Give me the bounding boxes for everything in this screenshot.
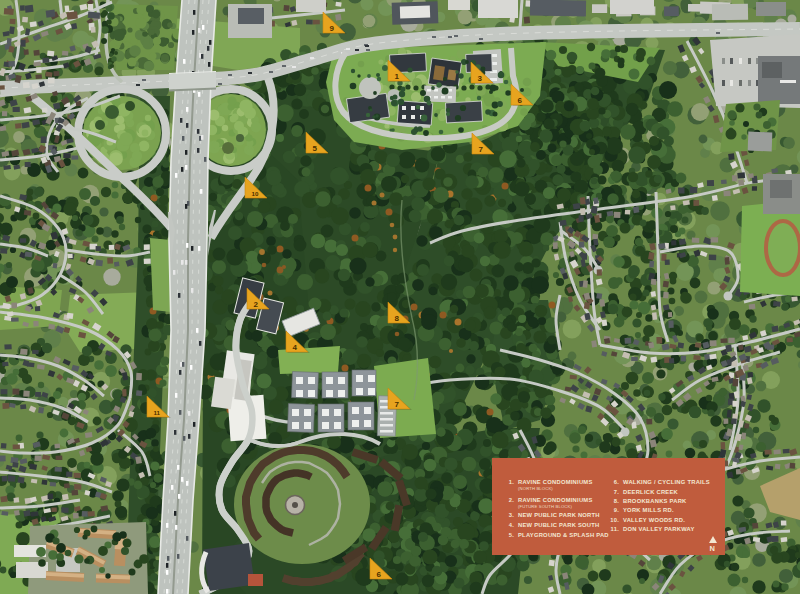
svg-text:PLAYGROUND & SPLASH PAD: PLAYGROUND & SPLASH PAD [518,532,609,538]
svg-text:3: 3 [478,74,483,83]
svg-text:7: 7 [395,400,400,409]
svg-text:6: 6 [518,96,523,105]
svg-text:DON VALLEY PARKWAY: DON VALLEY PARKWAY [623,526,695,532]
svg-text:3.: 3. [509,512,514,518]
svg-text:2: 2 [254,300,259,309]
svg-text:NEW PUBLIC PARK NORTH: NEW PUBLIC PARK NORTH [518,512,600,518]
svg-text:N: N [710,544,715,553]
svg-text:11.: 11. [611,526,620,532]
svg-text:RAVINE CONDOMINIUMS: RAVINE CONDOMINIUMS [518,479,593,485]
svg-text:2.: 2. [509,497,514,503]
svg-text:BROOKBANKS PARK: BROOKBANKS PARK [623,498,687,504]
svg-text:YORK MILLS RD.: YORK MILLS RD. [623,507,674,513]
svg-text:10: 10 [252,190,259,197]
svg-text:7: 7 [479,145,484,154]
svg-text:6.: 6. [614,479,619,485]
svg-text:8.: 8. [614,498,619,504]
svg-text:6: 6 [377,570,382,579]
svg-text:7.: 7. [614,489,619,495]
svg-text:4: 4 [293,343,298,352]
svg-text:(FUTURE SOUTH BLOCK): (FUTURE SOUTH BLOCK) [518,504,572,509]
svg-text:8: 8 [395,314,400,323]
svg-text:5.: 5. [509,532,514,538]
svg-text:11: 11 [154,409,161,416]
svg-text:9: 9 [330,24,335,33]
svg-text:NEW PUBLIC PARK SOUTH: NEW PUBLIC PARK SOUTH [518,522,599,528]
svg-text:1: 1 [395,72,400,81]
svg-text:1.: 1. [509,479,514,485]
svg-text:(NORTH BLOCK): (NORTH BLOCK) [518,486,553,491]
svg-text:RAVINE CONDOMINIUMS: RAVINE CONDOMINIUMS [518,497,593,503]
svg-text:WALKING / CYCLING TRAILS: WALKING / CYCLING TRAILS [623,479,710,485]
svg-text:10.: 10. [610,517,619,523]
svg-text:VALLEY WOODS RD.: VALLEY WOODS RD. [623,517,685,523]
svg-text:5: 5 [313,144,318,153]
svg-text:9.: 9. [614,507,619,513]
svg-text:DEERLICK CREEK: DEERLICK CREEK [623,489,679,495]
svg-text:4.: 4. [509,522,514,528]
